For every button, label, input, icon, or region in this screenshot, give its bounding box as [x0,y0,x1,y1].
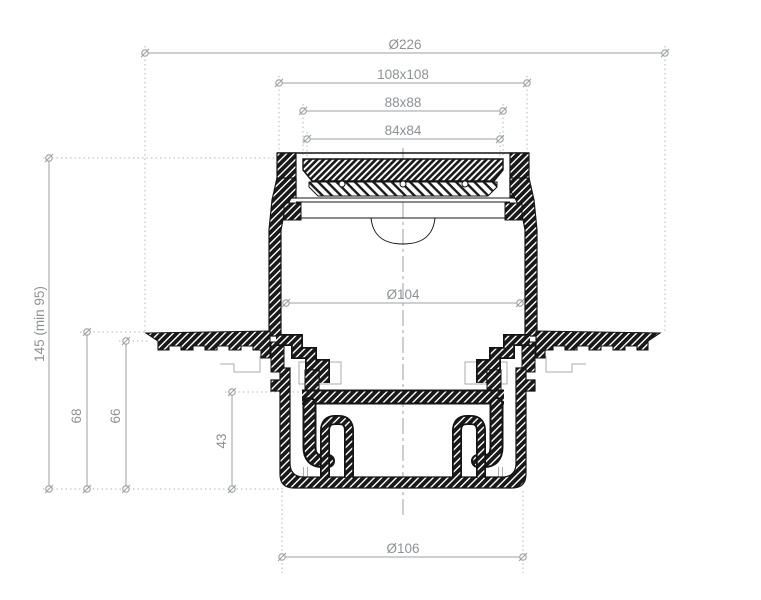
extension-lines [43,46,665,573]
flange-wing-right [536,331,660,358]
dim-label-body-diameter: Ø104 [386,287,420,302]
spigot-right [487,370,501,392]
dim-label-top-diameter: Ø226 [388,37,421,52]
dim-label-grate-inner: 84x84 [385,123,422,138]
drain-section-drawing: Ø226 108x108 88x88 84x84 Ø104 Ø106 145 (… [0,0,761,600]
dim-label-outlet-diameter: Ø106 [386,541,419,556]
dim-label-height-right: 66 [108,408,123,423]
body-wall-left [269,178,296,336]
dim-label-frame-outer: 108x108 [377,67,429,82]
spigot-left [305,370,319,392]
grate [303,159,503,181]
dim-label-grate-outer: 88x88 [385,95,422,110]
clamp-block-left [284,203,301,220]
dim-label-height-left: 68 [69,408,84,423]
flange-wing-left [146,331,270,358]
frame-left-post [277,153,296,180]
dim-label-height-total: 145 (min 95) [32,286,47,362]
dim-label-height-trap: 43 [214,433,229,448]
body-wall-right [510,178,537,336]
clamp-block-right [505,203,522,220]
frame-right-post [510,153,529,180]
technical-drawing-page: Ø226 108x108 88x88 84x84 Ø104 Ø106 145 (… [0,0,761,600]
